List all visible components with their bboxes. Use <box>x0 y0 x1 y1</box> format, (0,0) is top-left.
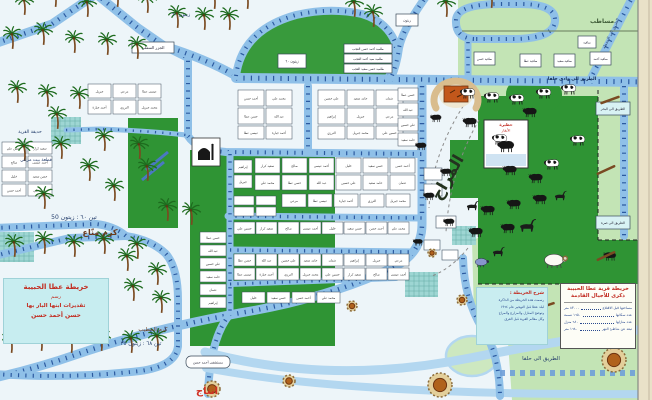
barn-box-water <box>486 154 526 166</box>
house-label: أحمد جبارة <box>272 130 286 135</box>
house-label: علي حسين <box>206 262 221 266</box>
house-label: عيسى عطا <box>313 199 328 203</box>
house-label: الترزي <box>327 131 335 135</box>
house-label: حسن عطا <box>244 114 257 118</box>
house-label: مرعي <box>395 258 403 262</box>
barn-label: الأبقار <box>501 128 511 133</box>
house-label: حامد سعيد <box>206 275 220 279</box>
map-label: الطريق الى حلفا <box>522 356 560 362</box>
house-label: حسن سعيد <box>271 296 286 300</box>
named-box-label: ساقية سعيد <box>557 59 572 63</box>
house-label: علي حسين <box>341 181 356 185</box>
artist-title: خريطة عطا الحبيبة <box>4 283 108 291</box>
village-map: أحمد حسنمحمد عليحسن عطاعبد اللهعلي حسينح… <box>0 0 652 400</box>
house-label: مرعي <box>386 114 394 118</box>
explanation-line: وكل معالم القرية قبل الغرق <box>480 316 544 322</box>
house-label: جبريل <box>373 258 381 262</box>
house-label: عثمان <box>399 181 407 185</box>
house-label: أحمد جبارة <box>92 104 106 109</box>
artist-name: حسن أحمد حسن <box>4 312 108 319</box>
named-box-label: الطريق الى صرة <box>601 221 625 225</box>
house-label: جبريل <box>239 180 247 184</box>
well-icon <box>607 353 620 366</box>
house-label: أحمد عيسى <box>314 163 329 168</box>
house-label: مرعي <box>121 89 129 93</box>
house-label: محمد جبريل <box>390 199 406 203</box>
well-icon <box>430 251 434 255</box>
animal-pen <box>442 250 458 260</box>
house-label: محمد علي <box>272 96 286 100</box>
named-box-label: ساقية حسن <box>477 57 493 61</box>
house-label: علي حسين <box>401 123 416 127</box>
map-explanation-box: شرح الخريطة : رسمت هذه الخريطة من الذاكر… <box>476 287 548 345</box>
house-label: حسين علي <box>325 272 339 276</box>
well-icon <box>433 378 446 391</box>
legend-stat-row: مساحتها قبل الاقتلاع٨٣٠٠٠ متر <box>564 305 632 312</box>
house-label: حسن سعيد <box>368 164 383 168</box>
page-edge <box>638 0 652 400</box>
named-box-label: ساقية عطا <box>524 59 538 63</box>
animal-pen <box>424 240 440 250</box>
house-label: أحمد عيسى <box>391 271 406 276</box>
house-label: صالح <box>11 160 18 164</box>
house-label: عثمان <box>386 96 394 100</box>
map-label: انتاج <box>196 386 218 397</box>
named-box-label: طلمبة سيد أحمد العجب <box>353 57 383 61</box>
house-label: محمد جبريل <box>303 272 319 276</box>
named-box-label: طلمبة أحمد حسن العجب <box>352 47 384 51</box>
house-label: سعيد كرار <box>347 272 362 276</box>
house-label: أحمد حسن <box>395 163 409 168</box>
house-label: أحمد حسن <box>244 95 258 100</box>
house-label: حسن عطا <box>288 181 301 185</box>
house-label: أحمد حسن <box>296 295 310 300</box>
named-box-label: الطريق الى البحر <box>600 107 625 111</box>
named-box-label: ساقية أحمد <box>593 57 608 61</box>
house-box <box>234 196 254 205</box>
house-label: عبد الله <box>317 181 327 185</box>
map-label: قطعة بيت مرعي <box>20 158 52 163</box>
legend-stat-row: تبعد عن شاطئ النهر١٦٨٠ متر <box>564 326 632 333</box>
house-label: عيسى عطا <box>244 131 259 135</box>
house-label: الترزي <box>120 105 128 109</box>
legend-box: خريطة قرية عطا الحبيبة ذكرى للأجيال القا… <box>560 283 636 349</box>
house-label: صالح <box>291 164 298 168</box>
house-label: عبد الله <box>403 108 413 112</box>
house-label: حسين علي <box>237 226 251 230</box>
map-label: كرم منّاع <box>83 228 118 237</box>
well-icon <box>349 303 355 309</box>
house-label: حامد سعيد <box>354 96 368 100</box>
house-label: سعيد كرار <box>259 226 274 230</box>
barn-label: حظيرة <box>499 122 512 127</box>
map-label: زيتون ٦٠ <box>172 12 191 18</box>
house-label: سعيد كرار <box>260 164 275 168</box>
map-label: مساطب <box>590 18 614 25</box>
legend-stat-row: عدد منازلها٦٨٠ منزل <box>564 319 632 326</box>
house-label: علي حسين <box>281 258 296 262</box>
house-label: مرعي <box>290 199 298 203</box>
named-box-label: ساقية <box>583 40 591 44</box>
house-label: الترزي <box>284 272 292 276</box>
house-box <box>256 207 276 216</box>
house-label: حامد سعيد <box>369 181 383 185</box>
house-label: جبريل <box>96 89 104 93</box>
house-label: عيسى عطا <box>237 272 252 276</box>
legend-title: خريطة قرية عطا الحبيبة <box>564 286 632 293</box>
named-box-label: الجزر السفلي <box>142 45 165 50</box>
house-label: أحمد حسن <box>369 225 383 230</box>
well-icon <box>459 297 465 303</box>
house-label: عبد الله <box>262 258 272 262</box>
legend-stat-row: عدد سكانها١٦٥٠ نسمة <box>564 312 632 319</box>
house-label: محمد جبريل <box>353 131 369 135</box>
well-icon <box>286 378 293 385</box>
house-label: محمد جبريل <box>142 105 158 109</box>
house-label: صالح <box>285 226 292 230</box>
house-label: خليل <box>345 164 351 168</box>
house-label: حسن عطا <box>206 236 219 240</box>
named-box-label: مستشفى أحمد حسن <box>193 359 223 364</box>
house-label: خليل <box>250 296 256 300</box>
house-label: خليل <box>11 174 17 178</box>
named-box-label: زيتون ٦٠ <box>285 59 299 63</box>
house-label: عثمان <box>209 288 217 292</box>
map-label: الطريق الى وادي حلفا <box>548 77 597 82</box>
house-label: خليل <box>329 226 335 230</box>
named-box-label: زيتون <box>403 18 411 22</box>
house-label: محمد علي <box>322 296 336 300</box>
map-label: تين ٦٨ : زيتون ٣٥ <box>121 341 162 347</box>
house-label: عبد الله <box>274 114 284 118</box>
explanation-heading: شرح الخريطة : <box>480 290 544 297</box>
house-label: صالح <box>373 272 380 276</box>
house-label: حسن سعيد <box>347 226 362 230</box>
house-label: حسين علي <box>382 131 396 135</box>
house-label: عثمان <box>329 258 337 262</box>
house-label: حامد سعيد <box>401 138 415 142</box>
house-label: علي حسين <box>324 96 339 100</box>
house-label: حسن سعيد <box>33 174 48 178</box>
house-box <box>234 207 254 216</box>
map-label: حديقة القرية <box>18 130 42 135</box>
house-label: حسن عطا <box>238 258 251 262</box>
house-label: محمد علي <box>392 226 406 230</box>
named-box-label: طلمبة حسن سعيد العجب <box>352 67 384 71</box>
house-label: حامد سعيد <box>304 258 318 262</box>
house-label: الترزي <box>368 199 376 203</box>
map-label: تين ٦٠ : زيتون 50 <box>51 214 97 221</box>
house-label: عبد الله <box>208 249 218 253</box>
house-label: سعيد كرار <box>32 146 47 150</box>
map-label: كرم الخطيب <box>138 326 168 333</box>
house-label: أحمد عيسى <box>303 225 318 230</box>
house-label: عيسى عطا <box>142 89 157 93</box>
legend-subtitle: ذكرى للأجيال القادمة <box>564 293 632 300</box>
cattle-pasture <box>598 240 638 284</box>
legend-stats: مساحتها قبل الاقتلاع٨٣٠٠٠ متر عدد سكانها… <box>564 302 632 333</box>
artist-line: تقديرات ابنها البار بها <box>4 303 108 309</box>
house-label: أحمد حسن <box>7 187 21 192</box>
house-box <box>256 196 276 205</box>
artist-line: رسم <box>4 294 108 300</box>
house-label: حسن عطا <box>401 93 414 97</box>
house-label: جبريل <box>357 114 365 118</box>
house-label: أحمد جبارة <box>259 271 273 276</box>
house-label: أحمد جبارة <box>339 198 353 203</box>
artist-note-box: خريطة عطا الحبيبة رسم تقديرات ابنها البا… <box>3 278 109 344</box>
house-label: محمد علي <box>261 181 275 185</box>
